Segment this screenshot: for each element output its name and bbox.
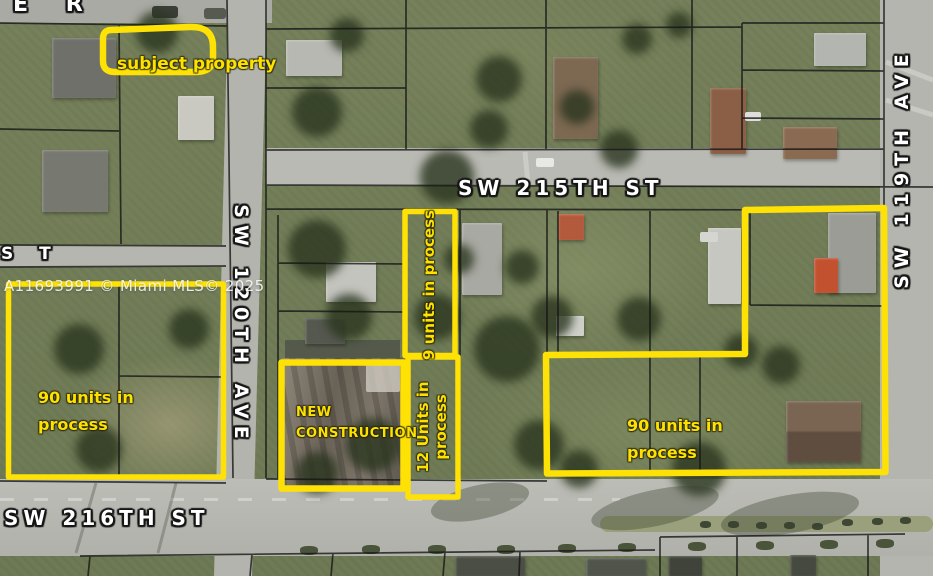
street-label-sw-119th-ave: SW 119TH AVE xyxy=(891,18,913,318)
subject-property-label: subject property xyxy=(117,54,276,74)
street-label-fragment-top: E R xyxy=(13,0,98,17)
left-90-units-label: 90 units in process xyxy=(38,384,134,438)
mls-watermark: A11693991 © Miami MLS© 2025 xyxy=(4,277,265,295)
street-label-fragment-left: S T xyxy=(1,244,61,264)
street-label-sw-215th-st: SW 215TH ST xyxy=(458,176,664,200)
twelve-units-label: 12 Units in process xyxy=(414,355,450,499)
left-90-units-outline xyxy=(9,284,224,477)
street-label-sw-120th-ave: SW 120TH AVE xyxy=(230,170,252,480)
new-construction-label: NEW CONSTRUCTION xyxy=(296,402,417,444)
aerial-map: E R S T SW 215TH ST SW 216TH ST SW 120TH… xyxy=(0,0,933,576)
street-label-sw-216th-st: SW 216TH ST xyxy=(4,506,210,530)
right-90-units-label: 90 units in process xyxy=(627,412,723,466)
nine-units-label: 9 units in process xyxy=(420,210,438,360)
